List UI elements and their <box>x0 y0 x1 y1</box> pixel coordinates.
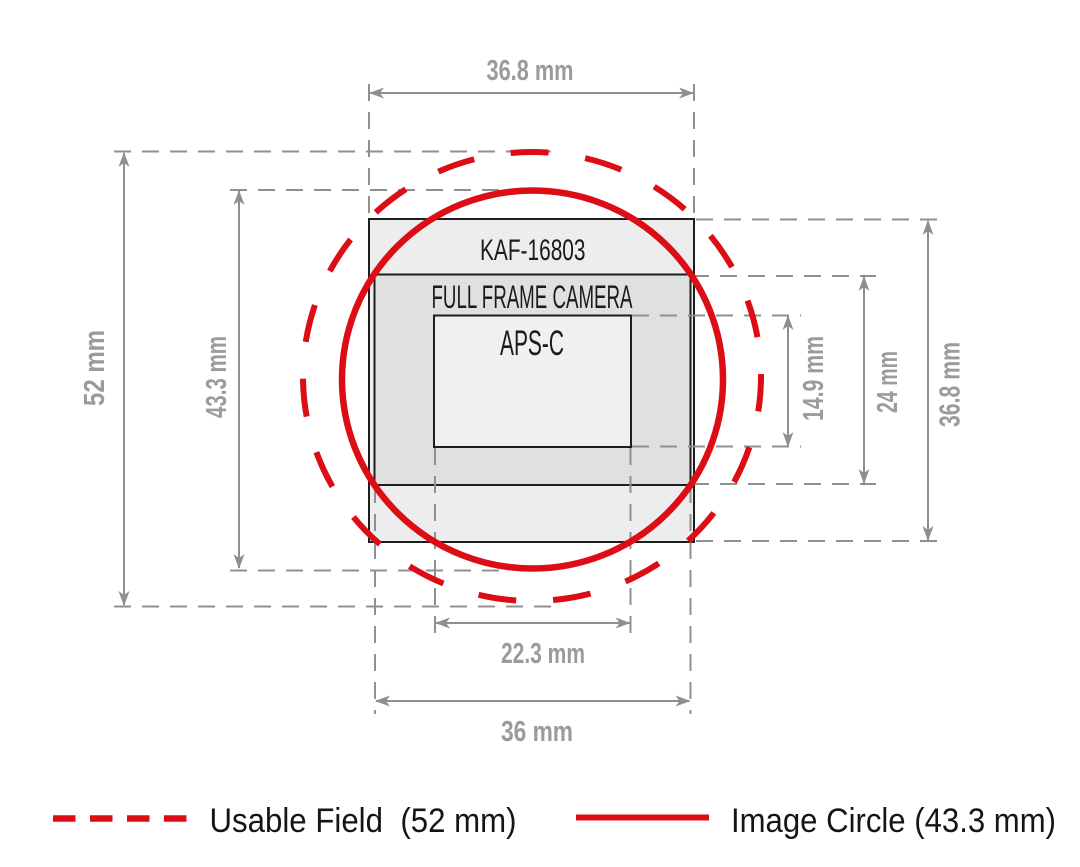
svg-text:52 mm: 52 mm <box>79 330 111 406</box>
svg-text:36.8 mm: 36.8 mm <box>935 342 967 427</box>
svg-text:22.3 mm: 22.3 mm <box>501 638 585 670</box>
svg-text:KAF-16803: KAF-16803 <box>480 234 586 267</box>
svg-text:36.8 mm: 36.8 mm <box>487 55 574 87</box>
svg-text:APS-C: APS-C <box>500 324 564 363</box>
svg-text:Image Circle (43.3 mm): Image Circle (43.3 mm) <box>731 802 1056 840</box>
svg-text:FULL FRAME CAMERA: FULL FRAME CAMERA <box>432 279 633 315</box>
svg-text:43.3 mm: 43.3 mm <box>201 336 233 418</box>
svg-text:Usable Field (52 mm): Usable Field (52 mm) <box>210 802 517 840</box>
svg-text:14.9 mm: 14.9 mm <box>798 336 830 421</box>
svg-text:36 mm: 36 mm <box>501 716 573 748</box>
svg-text:24 mm: 24 mm <box>872 351 904 413</box>
